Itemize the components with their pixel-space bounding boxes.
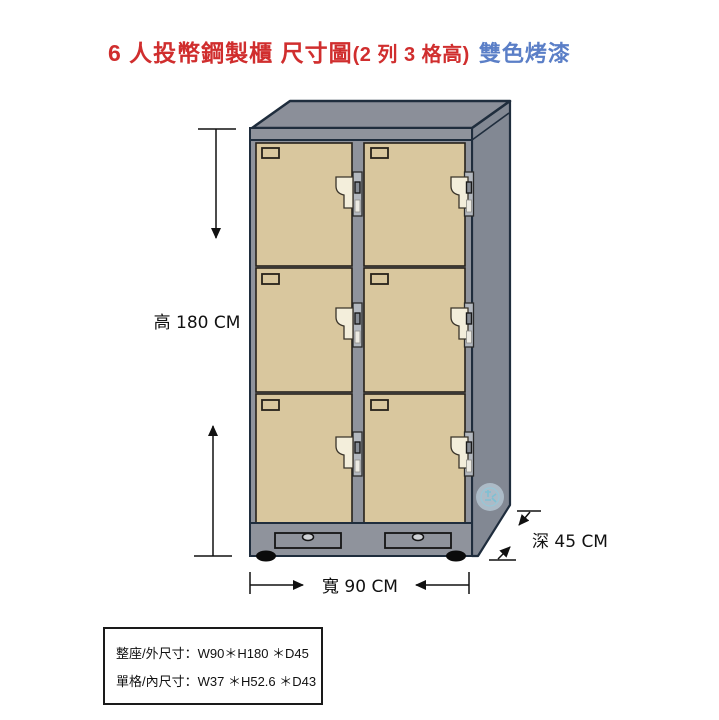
locker-door-r1c1 — [256, 143, 352, 266]
spec-outer-size: 整座/外尺寸：W90＊H180 ＊D45 — [116, 640, 313, 668]
height-dimension-label: 高 180 CM — [154, 313, 241, 333]
watermark-logo — [476, 483, 504, 511]
depth-dimension: 深 45 CM — [489, 511, 608, 560]
foot — [446, 551, 466, 562]
name-card-holder — [262, 148, 279, 158]
coin-collection-drawer — [275, 533, 341, 548]
spec-box: 整座/外尺寸：W90＊H180 ＊D45 單格/內尺寸：W37 ＊H52.6 ＊… — [103, 627, 323, 705]
name-card-holder — [371, 400, 388, 410]
keyhole — [413, 534, 424, 541]
cabinet-top-face — [252, 101, 510, 128]
coin-collection-drawer — [385, 533, 451, 548]
name-card-holder — [262, 274, 279, 284]
name-card-holder — [262, 400, 279, 410]
locker-door-r2c1 — [256, 268, 352, 392]
locker-door-r3c2 — [364, 394, 465, 523]
locker-door-r3c1 — [256, 394, 352, 523]
locker-door-r1c2 — [364, 143, 465, 266]
locker-dimension-page: 6 人投幣鋼製櫃 尺寸圖(2 列 3 格高)雙色烤漆 — [0, 0, 719, 720]
height-dimension: 高 180 CM — [154, 129, 241, 556]
cabinet — [250, 101, 510, 562]
keyhole — [303, 534, 314, 541]
locker-dimension-diagram: 高 180 CM 寬 90 CM 深 45 CM — [0, 0, 719, 720]
name-card-holder — [371, 274, 388, 284]
name-card-holder — [371, 148, 388, 158]
width-dimension: 寬 90 CM — [250, 572, 469, 597]
width-dimension-label: 寬 90 CM — [322, 577, 398, 597]
spec-inner-size: 單格/內尺寸：W37 ＊H52.6 ＊D43 — [116, 668, 313, 696]
cabinet-top-slab — [250, 128, 472, 140]
foot — [256, 551, 276, 562]
depth-dimension-label: 深 45 CM — [532, 532, 608, 552]
locker-door-r2c2 — [364, 268, 465, 392]
